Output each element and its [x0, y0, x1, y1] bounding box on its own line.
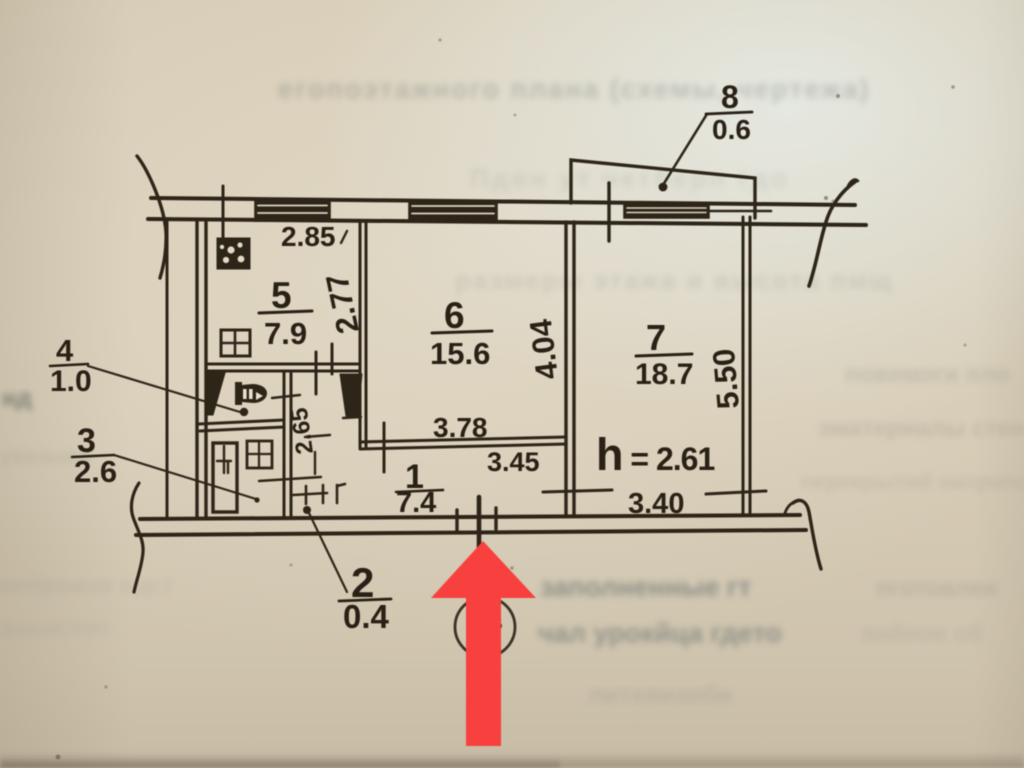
svg-text:4.04: 4.04 — [523, 317, 565, 382]
svg-text:7: 7 — [646, 317, 666, 358]
svg-text:1.0: 1.0 — [50, 365, 92, 398]
svg-text:2.85: 2.85 — [281, 221, 336, 252]
svg-text:4: 4 — [56, 333, 74, 368]
svg-text:0.4: 0.4 — [343, 598, 390, 635]
svg-text:5.50: 5.50 — [706, 347, 746, 410]
svg-text:15.6: 15.6 — [430, 336, 490, 371]
svg-text:h = 2.61: h = 2.61 — [596, 429, 714, 480]
svg-text:3.40: 3.40 — [628, 488, 684, 520]
svg-text:18.7: 18.7 — [635, 358, 693, 391]
svg-text:6: 6 — [444, 295, 465, 336]
svg-text:8: 8 — [721, 79, 739, 115]
svg-text:3.78: 3.78 — [433, 412, 488, 443]
svg-text:3.45: 3.45 — [487, 447, 540, 477]
svg-text:2.6: 2.6 — [74, 454, 117, 489]
svg-text:5: 5 — [271, 275, 292, 316]
svg-text:0.6: 0.6 — [712, 114, 751, 145]
svg-text:7.9: 7.9 — [264, 316, 307, 351]
svg-text:2.65: 2.65 — [286, 406, 319, 456]
